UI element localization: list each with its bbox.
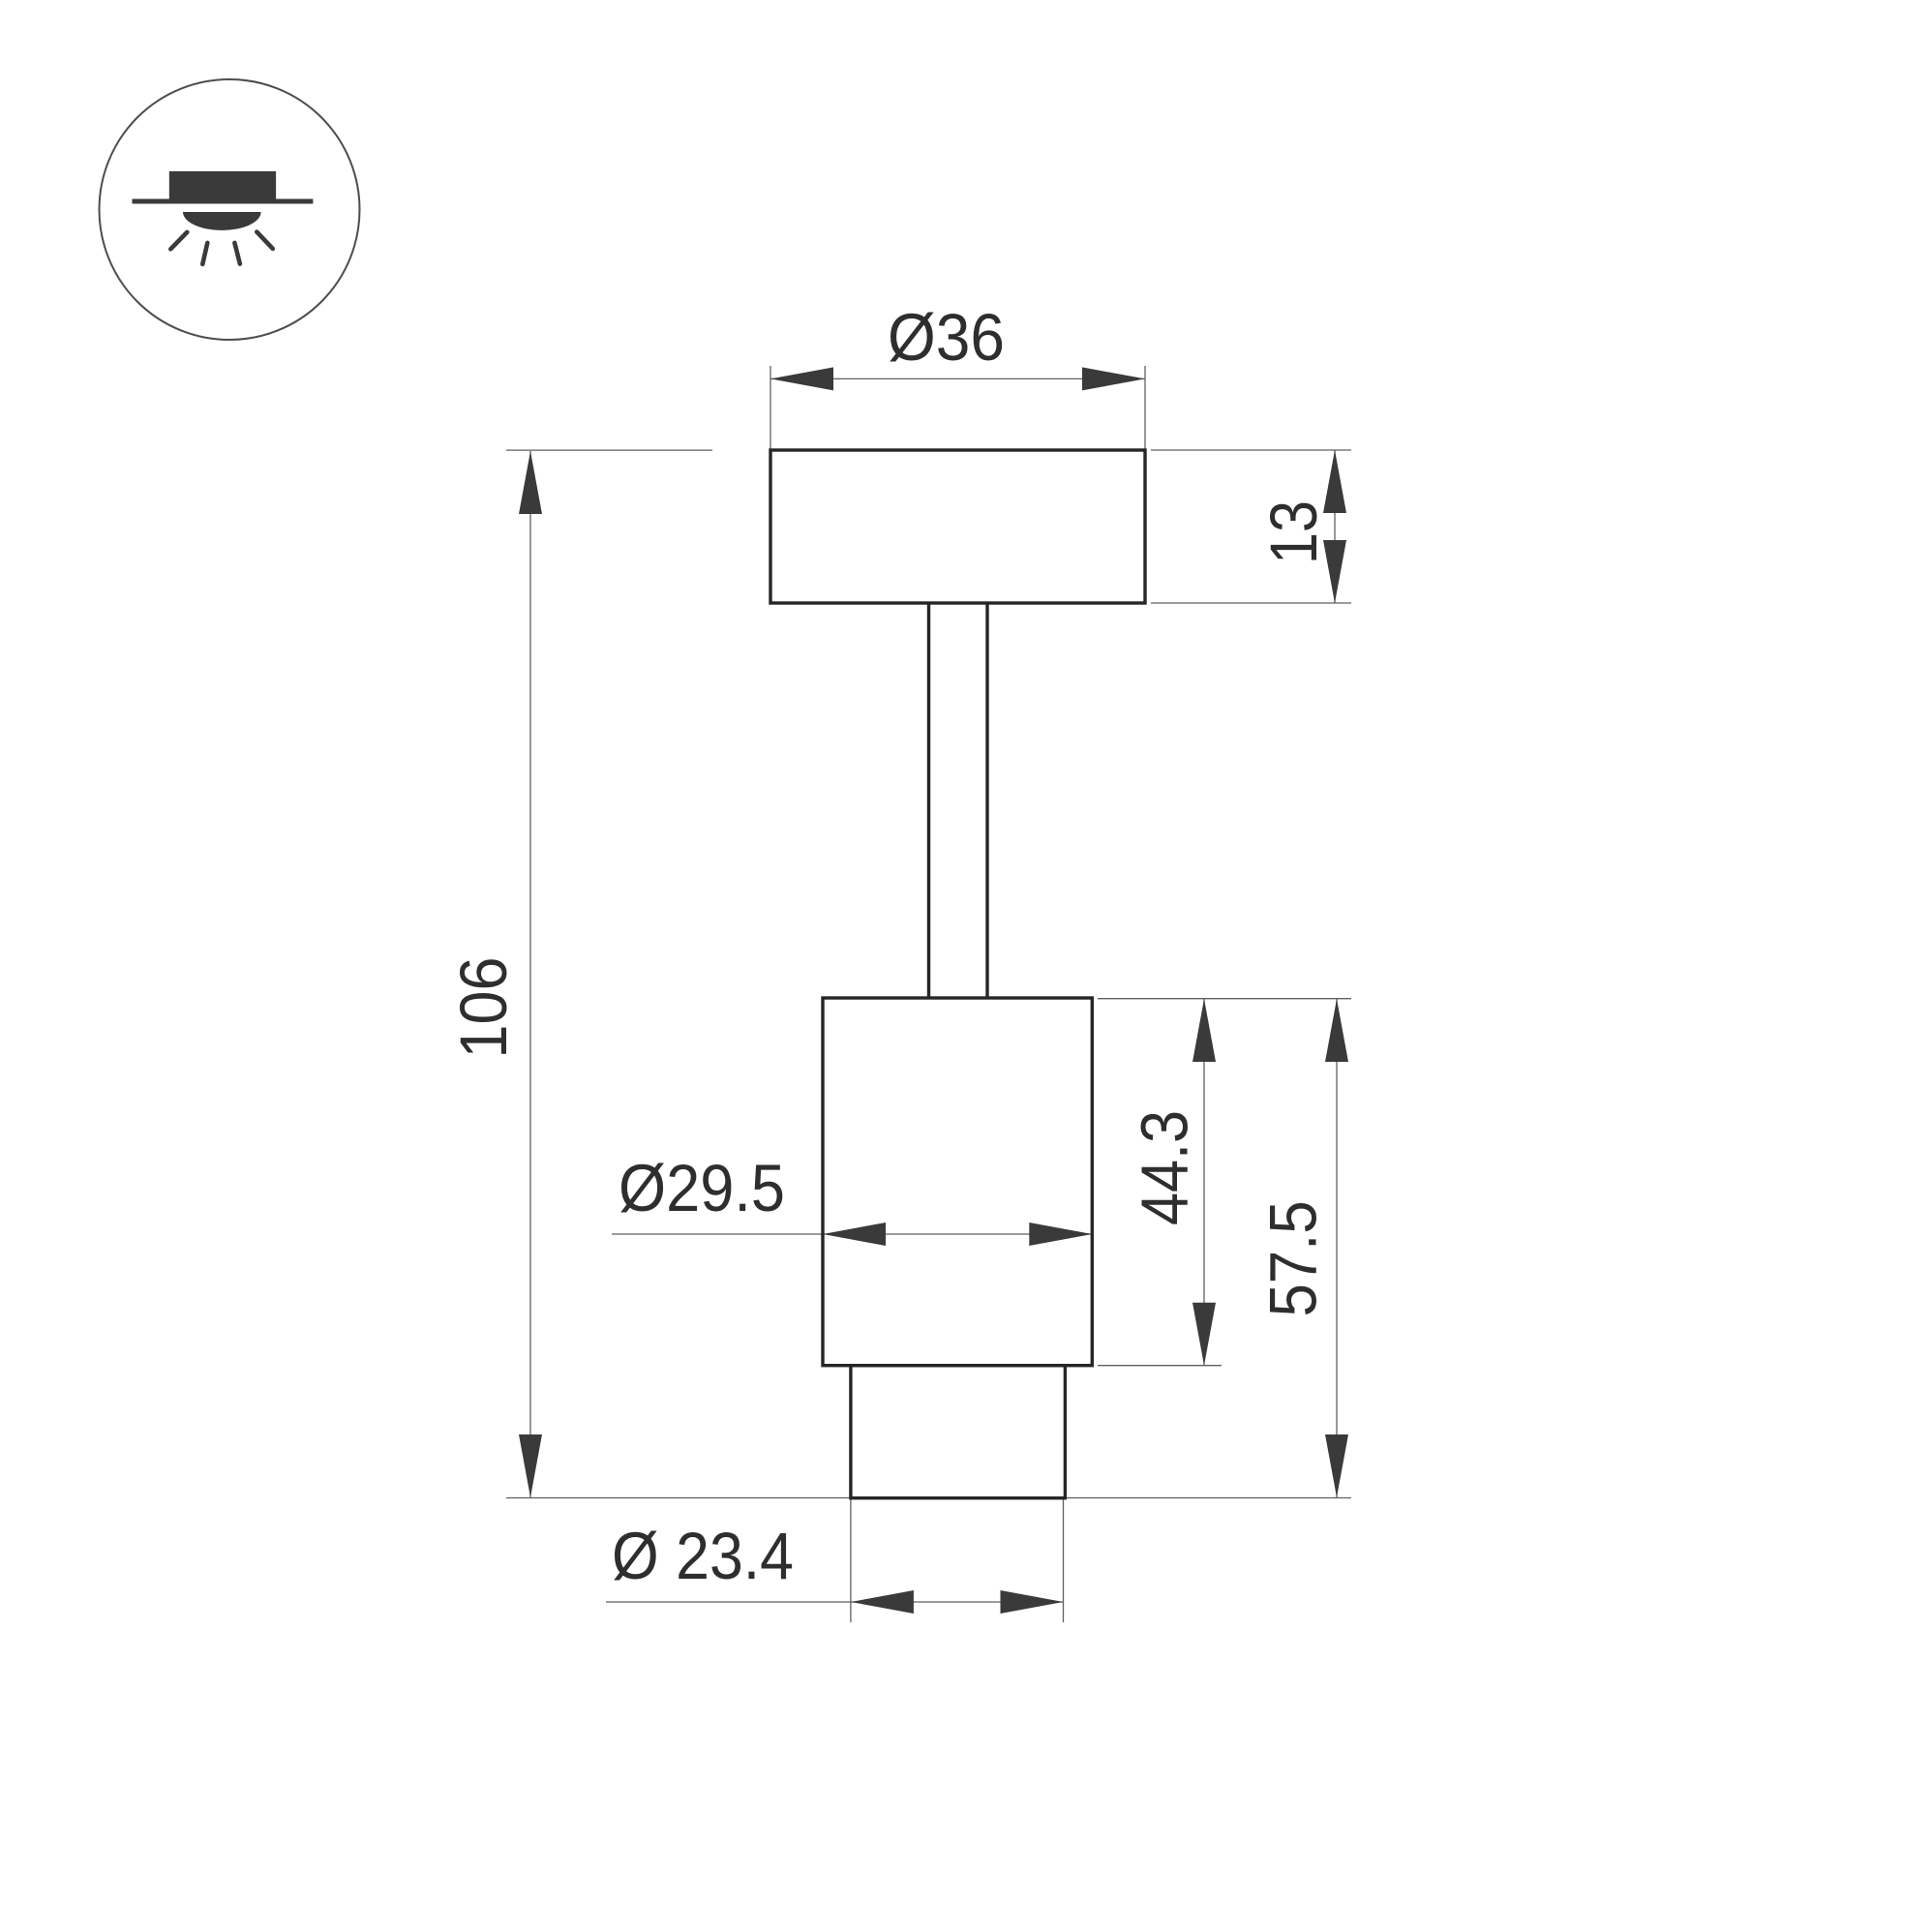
svg-text:106: 106 [446,957,521,1059]
svg-text:44.3: 44.3 [1128,1110,1202,1225]
svg-text:Ø 23.4: Ø 23.4 [612,1519,794,1593]
svg-text:Ø29.5: Ø29.5 [619,1151,785,1225]
svg-text:57.5: 57.5 [1256,1201,1331,1317]
svg-text:Ø36: Ø36 [888,300,1005,375]
svg-text:13: 13 [1256,500,1331,564]
